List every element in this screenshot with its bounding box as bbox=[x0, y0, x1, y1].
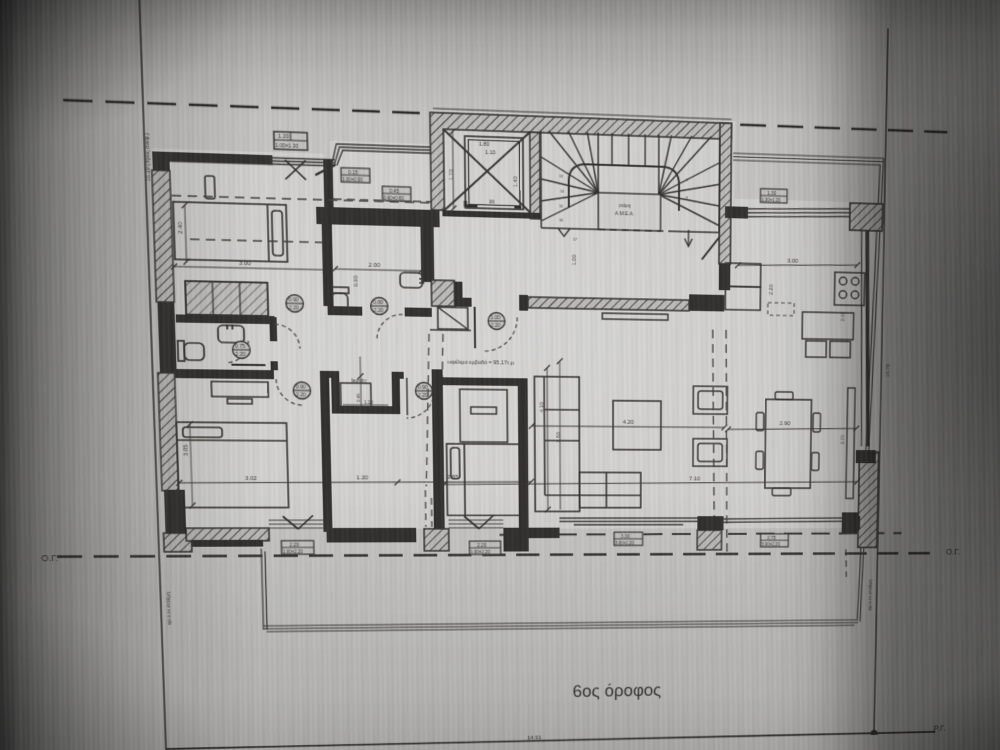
svg-text:6ος όροφος: 6ος όροφος bbox=[573, 681, 662, 701]
svg-text:Ο.Γ.: Ο.Γ. bbox=[946, 548, 960, 557]
svg-text:1.20: 1.20 bbox=[278, 135, 290, 141]
svg-text:ωφέλιμο εμβαδό = 95,17τ.μ.: ωφέλιμο εμβαδό = 95,17τ.μ. bbox=[447, 359, 515, 366]
svg-text:2.90: 2.90 bbox=[780, 421, 791, 427]
svg-text:2.00: 2.00 bbox=[368, 262, 380, 269]
svg-text:2.20: 2.20 bbox=[235, 353, 245, 359]
svg-text:1.70: 1.70 bbox=[449, 169, 455, 181]
svg-text:1.20: 1.20 bbox=[356, 475, 368, 481]
svg-text:15: 15 bbox=[559, 204, 564, 209]
svg-text:2.20: 2.20 bbox=[418, 394, 428, 399]
svg-text:lift: lift bbox=[489, 200, 494, 206]
svg-text:Ρ.Γ.: Ρ.Γ. bbox=[933, 724, 945, 733]
svg-text:2.20: 2.20 bbox=[769, 284, 774, 295]
svg-text:1.00: 1.00 bbox=[572, 254, 577, 265]
svg-text:14.91: 14.91 bbox=[527, 735, 542, 741]
svg-text:0.90: 0.90 bbox=[354, 275, 360, 286]
svg-text:0.60×0.60: 0.60×0.60 bbox=[383, 196, 404, 202]
svg-text:Άποψ: Άποψ bbox=[872, 733, 898, 745]
svg-text:1.00×0.90: 1.00×0.90 bbox=[342, 177, 363, 183]
svg-text:4.20: 4.20 bbox=[623, 419, 634, 425]
svg-text:1.80: 1.80 bbox=[479, 142, 490, 148]
svg-text:2.20: 2.20 bbox=[373, 309, 383, 315]
svg-text:φρ.ο.εκ.στάθμη: φρ.ο.εκ.στάθμη bbox=[867, 580, 873, 611]
svg-text:3.30: 3.30 bbox=[621, 534, 630, 539]
svg-text:Ο.Γ.: Ο.Γ. bbox=[41, 554, 58, 564]
svg-text:2.50: 2.50 bbox=[556, 432, 561, 443]
svg-text:2.20: 2.20 bbox=[290, 543, 300, 548]
svg-text:1.40: 1.40 bbox=[514, 176, 520, 187]
svg-text:3.02: 3.02 bbox=[245, 476, 257, 482]
svg-text:1.30×1.20: 1.30×1.20 bbox=[761, 198, 780, 204]
svg-text:3.00×2.20: 3.00×2.20 bbox=[615, 541, 634, 546]
svg-text:13: 13 bbox=[559, 174, 564, 179]
svg-text:14: 14 bbox=[560, 189, 565, 194]
svg-text:1.10: 1.10 bbox=[364, 400, 373, 405]
svg-text:0.90: 0.90 bbox=[288, 298, 298, 304]
svg-text:3.00: 3.00 bbox=[239, 260, 252, 267]
svg-text:2.20: 2.20 bbox=[477, 543, 486, 548]
svg-text:1.00: 1.00 bbox=[491, 316, 501, 322]
svg-text:0.45: 0.45 bbox=[389, 189, 399, 195]
svg-text:0.90: 0.90 bbox=[418, 386, 428, 391]
svg-text:0.75: 0.75 bbox=[235, 345, 245, 351]
svg-text:4.10: 4.10 bbox=[540, 402, 545, 413]
svg-text:7.10: 7.10 bbox=[689, 476, 700, 482]
svg-text:2.20: 2.20 bbox=[289, 306, 299, 312]
svg-text:1.10: 1.10 bbox=[485, 150, 496, 156]
svg-text:2.40: 2.40 bbox=[177, 221, 184, 233]
svg-text:2.65: 2.65 bbox=[447, 474, 459, 480]
svg-text:0.90: 0.90 bbox=[296, 385, 306, 391]
svg-text:2.20: 2.20 bbox=[296, 393, 306, 399]
svg-text:1.30: 1.30 bbox=[767, 191, 776, 197]
svg-text:3.00×2.20: 3.00×2.20 bbox=[761, 542, 780, 547]
svg-text:Α.Μ.Ε.Α.: Α.Μ.Ε.Α. bbox=[615, 211, 635, 217]
svg-text:0.15: 0.15 bbox=[348, 170, 358, 176]
svg-text:0.80: 0.80 bbox=[373, 301, 383, 307]
svg-text:16: 16 bbox=[559, 218, 564, 223]
svg-text:16.19 (προς ανεφ.): 16.19 (προς ανεφ.) bbox=[144, 133, 152, 182]
svg-text:2.20: 2.20 bbox=[491, 324, 501, 330]
svg-text:3.00: 3.00 bbox=[787, 258, 798, 264]
svg-text:1.00×2.20: 1.00×2.20 bbox=[470, 550, 490, 555]
svg-text:1.00×2.20: 1.00×2.20 bbox=[283, 550, 304, 555]
svg-text:3.70: 3.70 bbox=[841, 435, 846, 444]
svg-text:1.00×1.30: 1.00×1.30 bbox=[275, 144, 298, 150]
svg-text:φρ.ο.εκ.στάθμη: φρ.ο.εκ.στάθμη bbox=[165, 592, 173, 625]
svg-text:16.70: 16.70 bbox=[886, 364, 891, 378]
svg-text:17: 17 bbox=[573, 237, 578, 242]
svg-text:3.05: 3.05 bbox=[183, 444, 190, 456]
svg-text:2.75: 2.75 bbox=[767, 536, 776, 541]
